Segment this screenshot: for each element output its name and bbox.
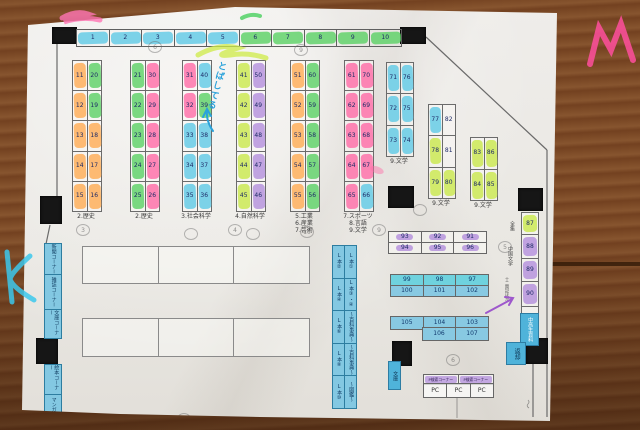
- lbook-cell: L本⑧: [333, 344, 345, 376]
- pc-header-label: P検索コーナー: [429, 377, 454, 383]
- cell-100: 100: [391, 286, 424, 296]
- cell-number: 12: [76, 103, 84, 109]
- cell-number: 96: [466, 245, 474, 251]
- cell-number: 43: [240, 133, 248, 139]
- lbook-cell: L本③・④: [345, 279, 356, 311]
- cell-number: 47: [254, 163, 262, 169]
- shelf-row: 5259: [291, 91, 319, 121]
- cell-number: 88: [526, 244, 534, 250]
- shelf-label: 3.社会科学: [168, 213, 224, 220]
- reading-table-cell: [83, 319, 159, 356]
- cell-47: 47: [252, 152, 266, 181]
- shelf-label: 9.文学: [461, 202, 505, 209]
- cell-66: 66: [360, 182, 374, 211]
- cell-19: 19: [88, 91, 102, 120]
- shelf-row: 7881: [429, 136, 455, 167]
- cell-84: 84: [471, 170, 485, 201]
- cell-number: 98: [436, 277, 444, 283]
- cell-number: 25: [134, 193, 142, 199]
- pink-m-scribble: [590, 24, 633, 64]
- top-cell-8: 8: [305, 30, 338, 46]
- cell-number: 44: [240, 163, 248, 169]
- pencil-circle: 5: [498, 241, 512, 253]
- cell-number: 20: [90, 73, 98, 79]
- cell-number: 103: [466, 320, 477, 326]
- top-cell-6: 6: [240, 30, 273, 46]
- cell-92: 92: [422, 232, 455, 242]
- cell-number: 48: [254, 133, 262, 139]
- cell-number: 5: [221, 35, 225, 41]
- reading-table-cell: [159, 247, 235, 283]
- cell-107: 107: [456, 328, 488, 340]
- cell-number: 90: [526, 291, 534, 297]
- pencil-circle: 10: [300, 226, 314, 238]
- cell-number: 21: [134, 73, 142, 79]
- cell-number: 42: [240, 103, 248, 109]
- cell-52: 52: [291, 91, 306, 120]
- cell-106: 106: [423, 328, 456, 340]
- cell-number: 29: [148, 103, 156, 109]
- cell-68: 68: [360, 121, 374, 150]
- floor-map-paper: 12345678910112012191318141715162.歴史21302…: [0, 0, 640, 430]
- pillar: [388, 186, 414, 208]
- cell-number: 7: [286, 35, 290, 41]
- shelf-row: 2229: [131, 91, 159, 121]
- cell-55: 55: [291, 182, 306, 211]
- cell-11: 11: [73, 61, 88, 90]
- cell-13: 13: [73, 121, 88, 150]
- cell-number: 26: [148, 193, 156, 199]
- shelf-column-right: 778278817980: [428, 104, 456, 199]
- shelf-row: 6269: [345, 91, 373, 121]
- cell-46: 46: [252, 182, 266, 211]
- lbook-row: L本②L本①: [333, 246, 356, 279]
- cell-17: 17: [88, 152, 102, 181]
- cell-72: 72: [387, 94, 401, 124]
- label-line: 2.歴史: [58, 213, 114, 220]
- cell-34: 34: [183, 152, 198, 181]
- cell-number: 41: [240, 73, 248, 79]
- table-row: 100101102: [391, 286, 488, 296]
- label-line: 7.スポーツ: [330, 213, 386, 220]
- wall-cell-89: 89: [522, 259, 538, 282]
- cell-number: 15: [76, 193, 84, 199]
- cell-74: 74: [401, 126, 414, 156]
- cell-number: 57: [308, 163, 316, 169]
- shelf-row: 3437: [183, 152, 211, 182]
- pc-cell: PC: [424, 384, 447, 397]
- cell-number: 4: [188, 35, 192, 41]
- cell-number: 73: [389, 138, 397, 144]
- cell-35: 35: [183, 182, 198, 211]
- cell-number: 80: [445, 180, 453, 186]
- shelf-label: 2.歴史: [116, 213, 172, 220]
- shelf-label: 9.文学: [377, 158, 421, 165]
- cell-54: 54: [291, 152, 306, 181]
- cell-78: 78: [429, 136, 443, 166]
- shelf-row: 2427: [131, 152, 159, 182]
- cell-number: 100: [401, 288, 412, 294]
- cell-29: 29: [146, 91, 160, 120]
- cell-number: 89: [526, 267, 534, 273]
- reading-table: [82, 246, 310, 284]
- shelf-row: 4447: [237, 152, 265, 182]
- top-cell-10: 10: [370, 30, 402, 46]
- cell-53: 53: [291, 121, 306, 150]
- cell-number: 67: [362, 163, 370, 169]
- shelf-row: 2130: [131, 61, 159, 91]
- cell-number: 10: [381, 35, 389, 41]
- shelf-row: 1516: [73, 182, 101, 211]
- cell-number: 46: [254, 193, 262, 199]
- shelf-row: 7374: [387, 126, 413, 156]
- shelf-row: 7275: [387, 94, 413, 125]
- cell-number: 40: [200, 73, 208, 79]
- cell-number: 18: [90, 133, 98, 139]
- cell-number: 19: [90, 103, 98, 109]
- cell-number: 82: [445, 117, 453, 123]
- reading-table: [82, 318, 310, 357]
- cell-75: 75: [401, 94, 414, 124]
- cell-79: 79: [429, 168, 443, 198]
- cell-41: 41: [237, 61, 252, 90]
- shelf-row: 1120: [73, 61, 101, 91]
- cell-number: 78: [431, 148, 439, 154]
- shelf-row: 6170: [345, 61, 373, 91]
- cell-number: 102: [466, 288, 477, 294]
- table-row: 999897: [391, 275, 488, 286]
- shelf-row: 6467: [345, 152, 373, 182]
- cell-number: 8: [318, 35, 322, 41]
- pencil-circle: [413, 204, 427, 216]
- shelf-row: 1417: [73, 152, 101, 182]
- cell-48: 48: [252, 121, 266, 150]
- cell-number: 60: [308, 73, 316, 79]
- cell-number: 105: [401, 320, 412, 326]
- lbook-cell: L本⑩: [333, 376, 345, 408]
- cell-number: 71: [389, 75, 397, 81]
- cell-65: 65: [345, 182, 360, 211]
- cell-number: 61: [348, 73, 356, 79]
- cell-32: 32: [183, 91, 198, 120]
- cell-number: 33: [186, 133, 194, 139]
- cell-number: 14: [76, 163, 84, 169]
- cell-number: 62: [348, 103, 356, 109]
- cell-91: 91: [454, 232, 486, 242]
- label-line: 3.社会科学: [168, 213, 224, 220]
- cell-61: 61: [345, 61, 360, 90]
- cell-number: 65: [348, 193, 356, 199]
- shelf-row: 5457: [291, 152, 319, 182]
- cell-51: 51: [291, 61, 306, 90]
- table-106-107: 106107: [422, 327, 489, 341]
- shelf-column: 11201219131814171516: [72, 60, 102, 212]
- shelf-row: 4249: [237, 91, 265, 121]
- shelf-row: 4150: [237, 61, 265, 91]
- cell-number: 101: [434, 288, 445, 294]
- cell-105: 105: [391, 317, 424, 329]
- cell-number: 32: [186, 103, 194, 109]
- wall-cell-87: 87: [522, 213, 538, 235]
- cell-number: 55: [294, 193, 302, 199]
- top-cell-4: 4: [175, 30, 208, 46]
- cell-number: 24: [134, 163, 142, 169]
- cell-number: 94: [401, 245, 409, 251]
- cell-73: 73: [387, 126, 401, 156]
- cell-number: 49: [254, 103, 262, 109]
- cell-23: 23: [131, 121, 146, 150]
- shelf-row: 3536: [183, 182, 211, 211]
- cell-number: 107: [466, 331, 477, 337]
- lbook-cell: 〜百科事典〜: [345, 311, 356, 343]
- cell-number: 31: [186, 73, 194, 79]
- lbook-row: L本⑥〜百科事典〜: [333, 311, 356, 344]
- pencil-circle: 4: [228, 224, 242, 236]
- lbook-row: L本④L本③・④: [333, 279, 356, 312]
- shelf-row: 5358: [291, 121, 319, 151]
- cell-82: 82: [443, 105, 456, 135]
- cell-83: 83: [471, 138, 485, 169]
- shelf-row: 7176: [387, 63, 413, 94]
- cell-16: 16: [88, 182, 102, 211]
- shelf-row: 3140: [183, 61, 211, 91]
- cell-number: 106: [433, 331, 444, 337]
- shelf-row: 1318: [73, 121, 101, 151]
- cell-number: 76: [403, 75, 411, 81]
- table-97-102: 999897100101102: [390, 274, 489, 297]
- cell-number: 1: [91, 35, 95, 41]
- cell-37: 37: [198, 152, 212, 181]
- cell-number: 79: [431, 180, 439, 186]
- cell-number: 30: [148, 73, 156, 79]
- cell-number: 83: [473, 150, 481, 156]
- left-wall-segment: 雑誌コーナー: [44, 274, 62, 310]
- shelf-row: 4348: [237, 121, 265, 151]
- cell-number: 50: [254, 73, 262, 79]
- cell-number: 75: [403, 106, 411, 112]
- shelf-top-row: 12345678910: [76, 29, 402, 47]
- cell-number: 74: [403, 138, 411, 144]
- cell-86: 86: [485, 138, 498, 169]
- cell-27: 27: [146, 152, 160, 181]
- label-line: 2.歴史: [116, 213, 172, 220]
- cell-70: 70: [360, 61, 374, 90]
- shelf-label: 4.自然科学: [222, 213, 278, 220]
- label-line: 5.工業: [276, 213, 332, 220]
- cell-number: 58: [308, 133, 316, 139]
- cell-94: 94: [389, 243, 422, 253]
- lbook-cell: 〜図鑑〜: [345, 376, 356, 408]
- cell-number: 69: [362, 103, 370, 109]
- table-row: 949596: [389, 243, 486, 253]
- table-row: 106107: [423, 328, 488, 340]
- cell-number: 66: [362, 193, 370, 199]
- pencil-circle: 9: [372, 224, 386, 236]
- pillar: [400, 27, 426, 44]
- cell-number: 68: [362, 133, 370, 139]
- cell-24: 24: [131, 152, 146, 181]
- reading-table-cell: [159, 319, 235, 356]
- wall-shelf: 87888990: [521, 212, 539, 316]
- cell-57: 57: [306, 152, 320, 181]
- side-label-collections: 全集: [509, 221, 514, 231]
- cell-number: 52: [294, 103, 302, 109]
- floor-map: 12345678910112012191318141715162.歴史21302…: [0, 0, 640, 430]
- pillar: [52, 27, 77, 44]
- reading-table-cell: [234, 247, 309, 283]
- left-wall-segment: 文庫コーナー: [44, 309, 62, 339]
- cell-number: 37: [200, 163, 208, 169]
- cell-58: 58: [306, 121, 320, 150]
- cell-81: 81: [443, 136, 456, 166]
- cell-50: 50: [252, 61, 266, 90]
- lbook-cell: L本②: [333, 246, 345, 278]
- cell-77: 77: [429, 105, 443, 135]
- left-wall-segment: 絵本コーナー: [44, 364, 62, 395]
- pencil-circle: 6: [446, 354, 460, 366]
- cell-number: 23: [134, 133, 142, 139]
- cell-21: 21: [131, 61, 146, 90]
- cell-number: 9: [351, 35, 355, 41]
- cell-number: 91: [466, 234, 474, 240]
- cell-number: 81: [445, 148, 453, 154]
- cell-number: 2: [123, 35, 127, 41]
- cell-69: 69: [360, 91, 374, 120]
- cell-43: 43: [237, 121, 252, 150]
- cell-number: 72: [389, 106, 397, 112]
- reading-table-cell: [83, 247, 159, 283]
- cell-25: 25: [131, 182, 146, 211]
- cell-28: 28: [146, 121, 160, 150]
- cell-number: 34: [186, 163, 194, 169]
- label-line: 4.自然科学: [222, 213, 278, 220]
- cell-31: 31: [183, 61, 198, 90]
- pillar: [518, 188, 543, 211]
- cell-number: 93: [401, 234, 409, 240]
- cell-number: 92: [434, 234, 442, 240]
- shelf-column-right: 83868485: [470, 137, 498, 201]
- cell-number: 99: [403, 277, 411, 283]
- cell-45: 45: [237, 182, 252, 211]
- wall-cell-90: 90: [522, 282, 538, 307]
- shelf-row: 2526: [131, 182, 159, 211]
- cell-number: 54: [294, 163, 302, 169]
- cell-number: 17: [90, 163, 98, 169]
- table-91-96: 939291949596: [388, 231, 487, 254]
- side-label-series: 十二国記ほか: [505, 277, 509, 301]
- pencil-circle: [184, 228, 198, 240]
- cell-number: 104: [434, 320, 445, 326]
- cell-95: 95: [422, 243, 455, 253]
- cell-number: 11: [76, 73, 84, 79]
- shelf-column: 21302229232824272526: [130, 60, 160, 212]
- cell-15: 15: [73, 182, 88, 211]
- cell-number: 51: [294, 73, 302, 79]
- lbook-cell: L本④: [333, 279, 345, 311]
- lbook-row: L本⑧〜百科事典〜: [333, 344, 356, 377]
- cell-56: 56: [306, 182, 320, 211]
- cell-number: 64: [348, 163, 356, 169]
- pencil-circle: 9: [294, 44, 308, 56]
- cell-18: 18: [88, 121, 102, 150]
- cell-20: 20: [88, 61, 102, 90]
- wood-seam: [552, 262, 640, 266]
- cell-36: 36: [198, 182, 212, 211]
- shelf-row: 7782: [429, 105, 455, 136]
- cell-number: 35: [186, 193, 194, 199]
- cell-22: 22: [131, 91, 146, 120]
- pc-row: PCPCPC: [423, 383, 494, 398]
- shelf-column: 51605259535854575556: [290, 60, 320, 212]
- cell-number: 86: [487, 150, 495, 156]
- pencil-circle: [177, 413, 191, 425]
- cell-59: 59: [306, 91, 320, 120]
- pc-header-label: P検索コーナー: [464, 377, 489, 383]
- cell-64: 64: [345, 152, 360, 181]
- desk-photo: 12345678910112012191318141715162.歴史21302…: [0, 0, 640, 430]
- cell-14: 14: [73, 152, 88, 181]
- cell-98: 98: [424, 275, 457, 285]
- cell-76: 76: [401, 63, 414, 93]
- top-cell-1: 1: [77, 30, 110, 46]
- shelf-column-right: 717672757374: [386, 62, 414, 157]
- shelf-column: 61706269636864676566: [344, 60, 374, 212]
- cell-60: 60: [306, 61, 320, 90]
- cell-63: 63: [345, 121, 360, 150]
- cell-number: 84: [473, 182, 481, 188]
- cell-number: 22: [134, 103, 142, 109]
- cell-93: 93: [389, 232, 422, 242]
- shelf-row: 5160: [291, 61, 319, 91]
- cell-number: 70: [362, 73, 370, 79]
- cell-number: 63: [348, 133, 356, 139]
- cell-102: 102: [456, 286, 488, 296]
- lbook-cell: 〜百科事典〜: [345, 344, 356, 376]
- cell-30: 30: [146, 61, 160, 90]
- top-cell-9: 9: [337, 30, 370, 46]
- lbook-cell: L本⑥: [333, 311, 345, 343]
- return-box: 返却: [506, 342, 526, 365]
- wall-cell-88: 88: [522, 235, 538, 259]
- pencil-circle: 3: [76, 224, 90, 236]
- pencil-circle: [246, 228, 260, 240]
- cell-97: 97: [456, 275, 488, 285]
- cell-number: 28: [148, 133, 156, 139]
- shelf-row: 7980: [429, 168, 455, 198]
- cell-80: 80: [443, 168, 456, 198]
- table-row: 939291: [389, 232, 486, 243]
- cell-number: 97: [468, 277, 476, 283]
- cell-number: 45: [240, 193, 248, 199]
- shelf-row: 8386: [471, 138, 497, 170]
- shelf-row: 6368: [345, 121, 373, 151]
- cell-49: 49: [252, 91, 266, 120]
- shelf-row: 6566: [345, 182, 373, 211]
- shelf-row: 4546: [237, 182, 265, 211]
- cell-number: 87: [526, 221, 534, 227]
- lbook-row: L本⑩〜図鑑〜: [333, 376, 356, 408]
- cell-85: 85: [485, 170, 498, 201]
- cell-number: 59: [308, 103, 316, 109]
- cell-number: 27: [148, 163, 156, 169]
- left-wall-segment: マンガ: [44, 394, 62, 415]
- cell-42: 42: [237, 91, 252, 120]
- shelf-column: 41504249434844474546: [236, 60, 266, 212]
- cell-26: 26: [146, 182, 160, 211]
- cell-number: 16: [90, 193, 98, 199]
- cell-number: 53: [294, 133, 302, 139]
- cell-number: 36: [200, 193, 208, 199]
